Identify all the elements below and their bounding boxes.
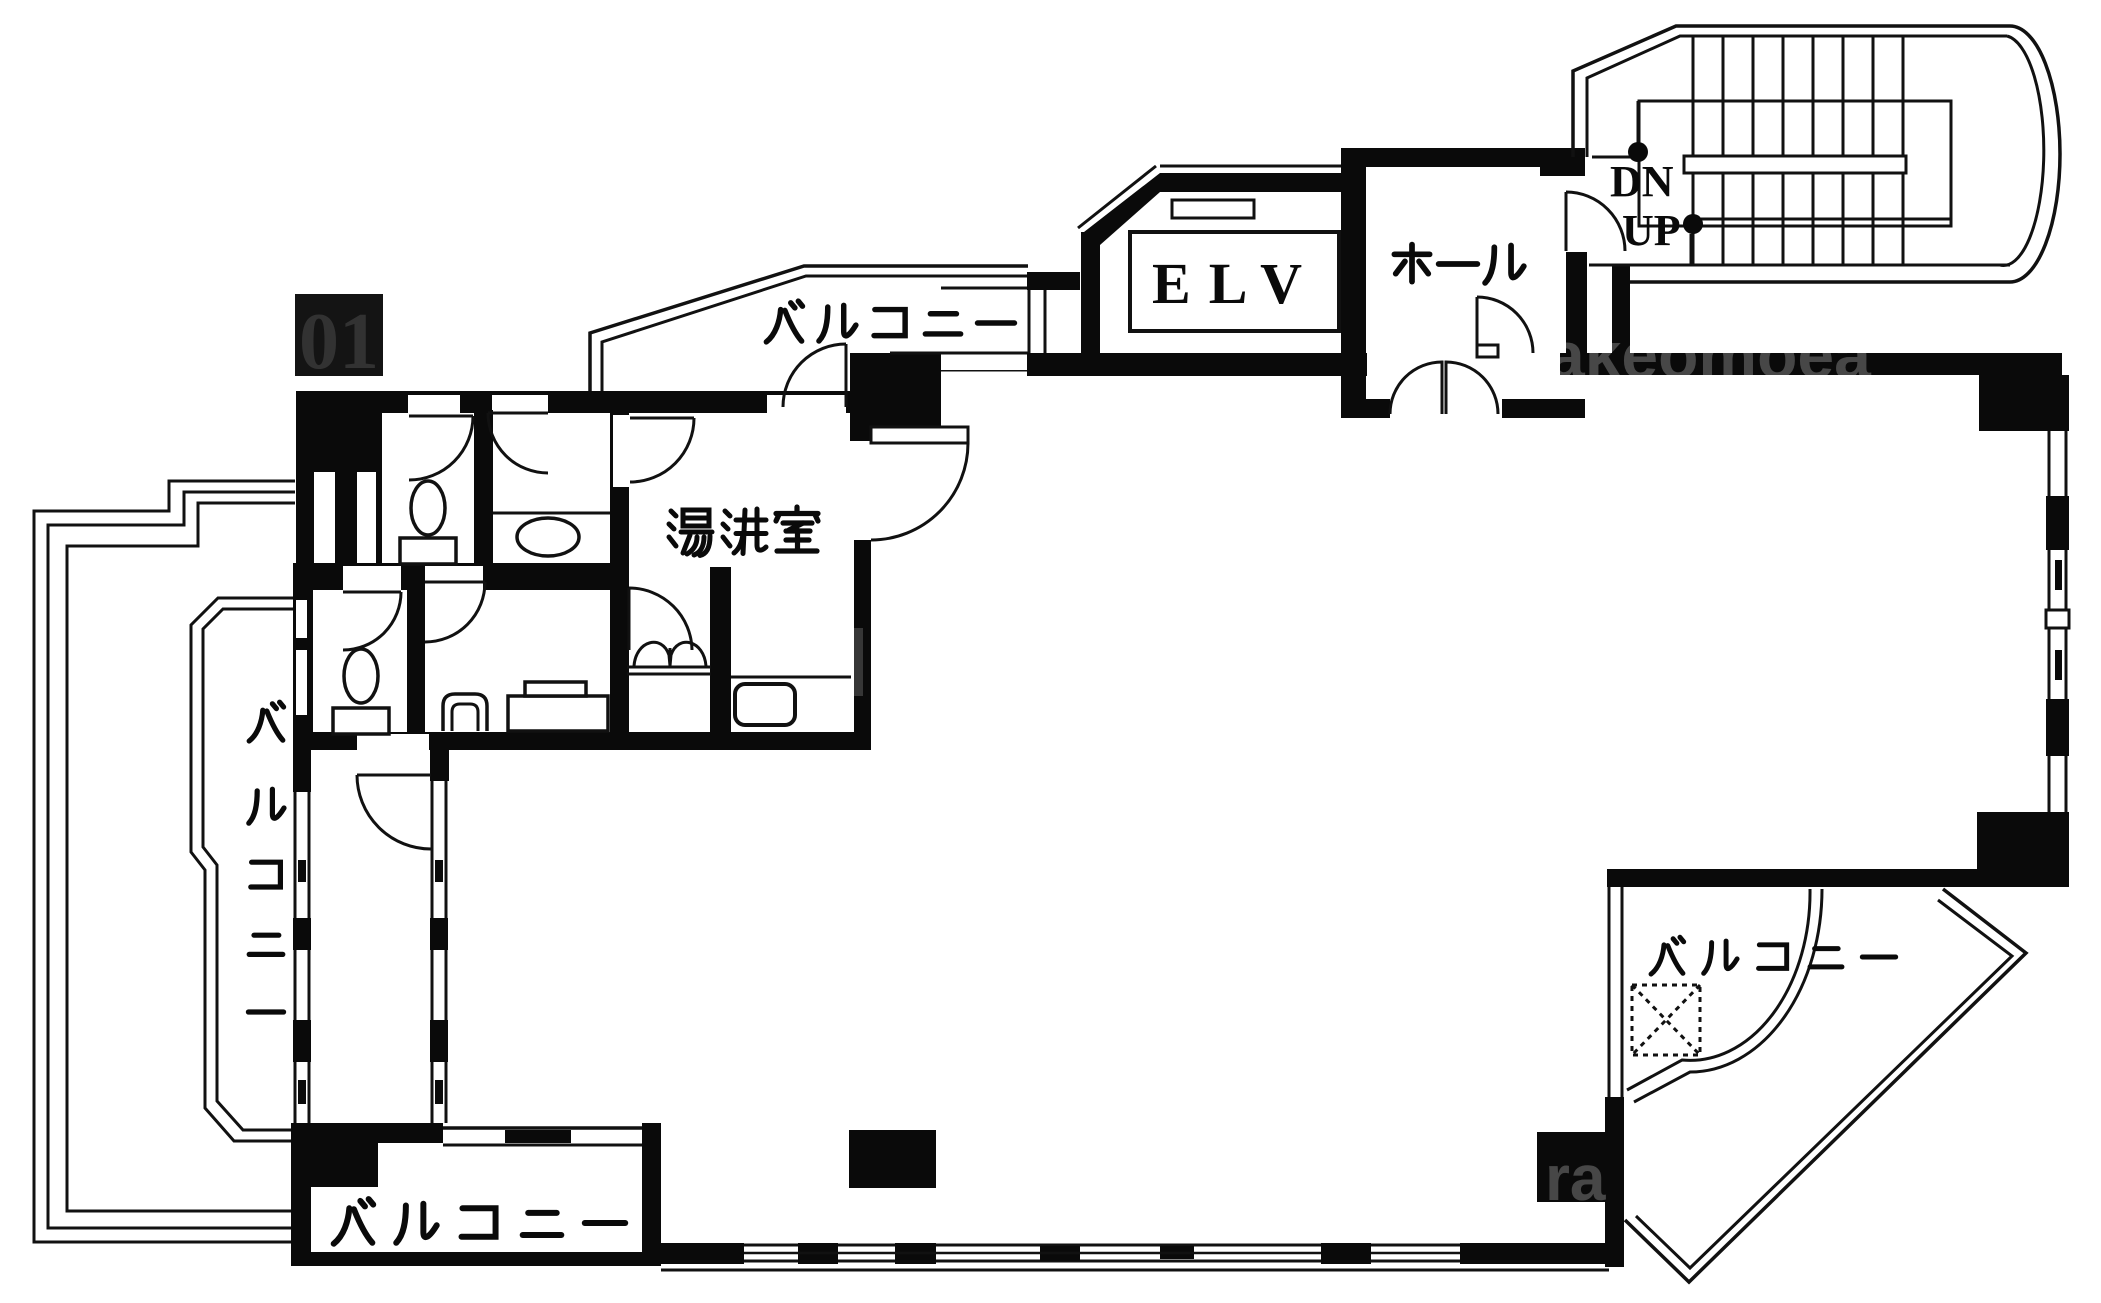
svg-text:DN: DN [1610, 157, 1674, 206]
svg-text:ra: ra [1545, 1142, 1606, 1214]
svg-text:01: 01 [299, 298, 379, 386]
svg-text:ELV: ELV [1152, 251, 1320, 316]
svg-text:UP: UP [1622, 206, 1681, 255]
svg-text:akeomoea: akeomoea [1548, 318, 1872, 392]
